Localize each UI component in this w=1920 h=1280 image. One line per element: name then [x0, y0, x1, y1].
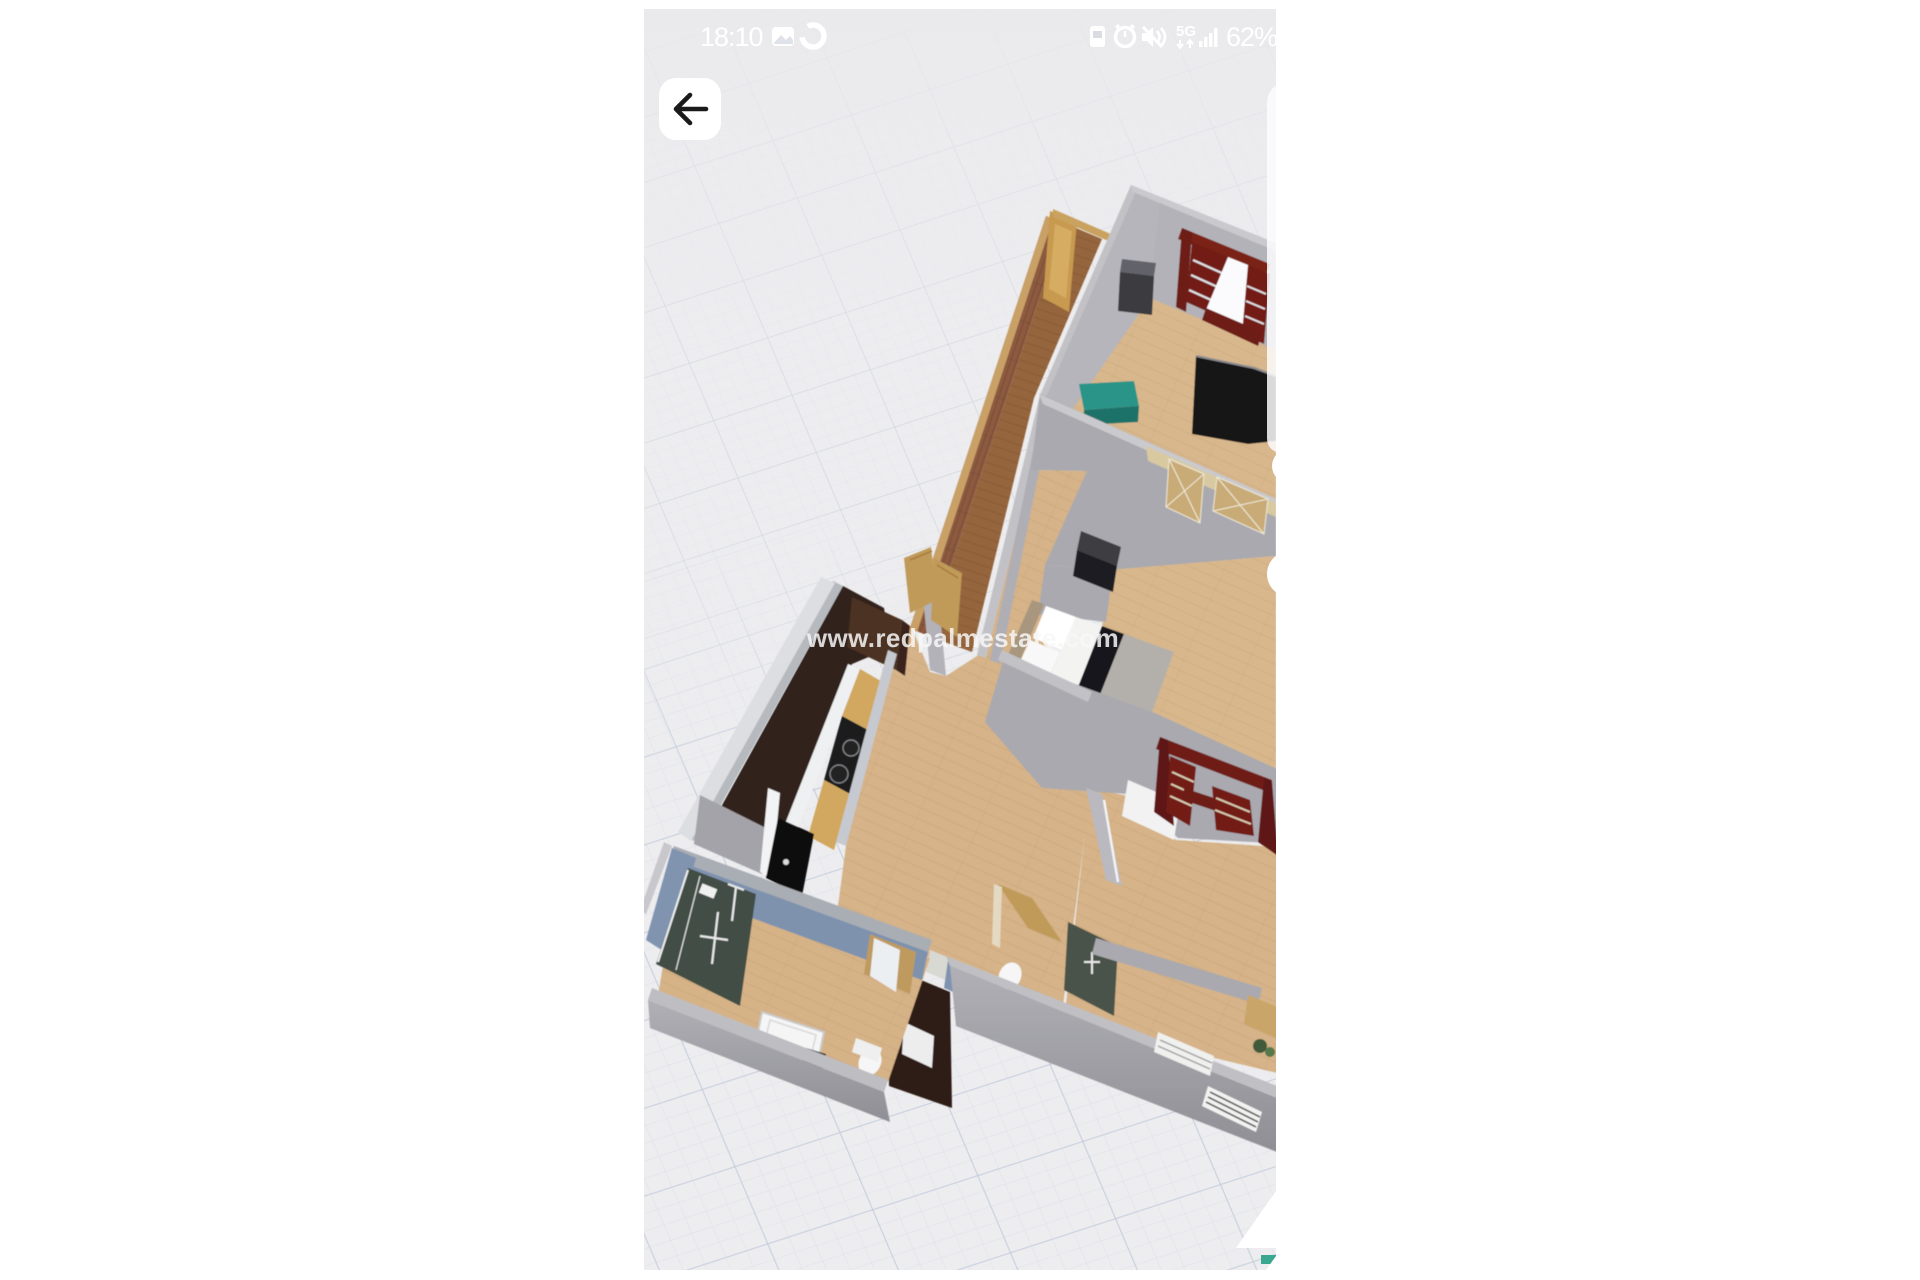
svg-text:www.redpalmestate.com: www.redpalmestate.com [806, 623, 1119, 653]
svg-text:18:10: 18:10 [700, 22, 763, 52]
svg-text:5G: 5G [1176, 23, 1196, 40]
svg-text:62%: 62% [1226, 22, 1278, 52]
